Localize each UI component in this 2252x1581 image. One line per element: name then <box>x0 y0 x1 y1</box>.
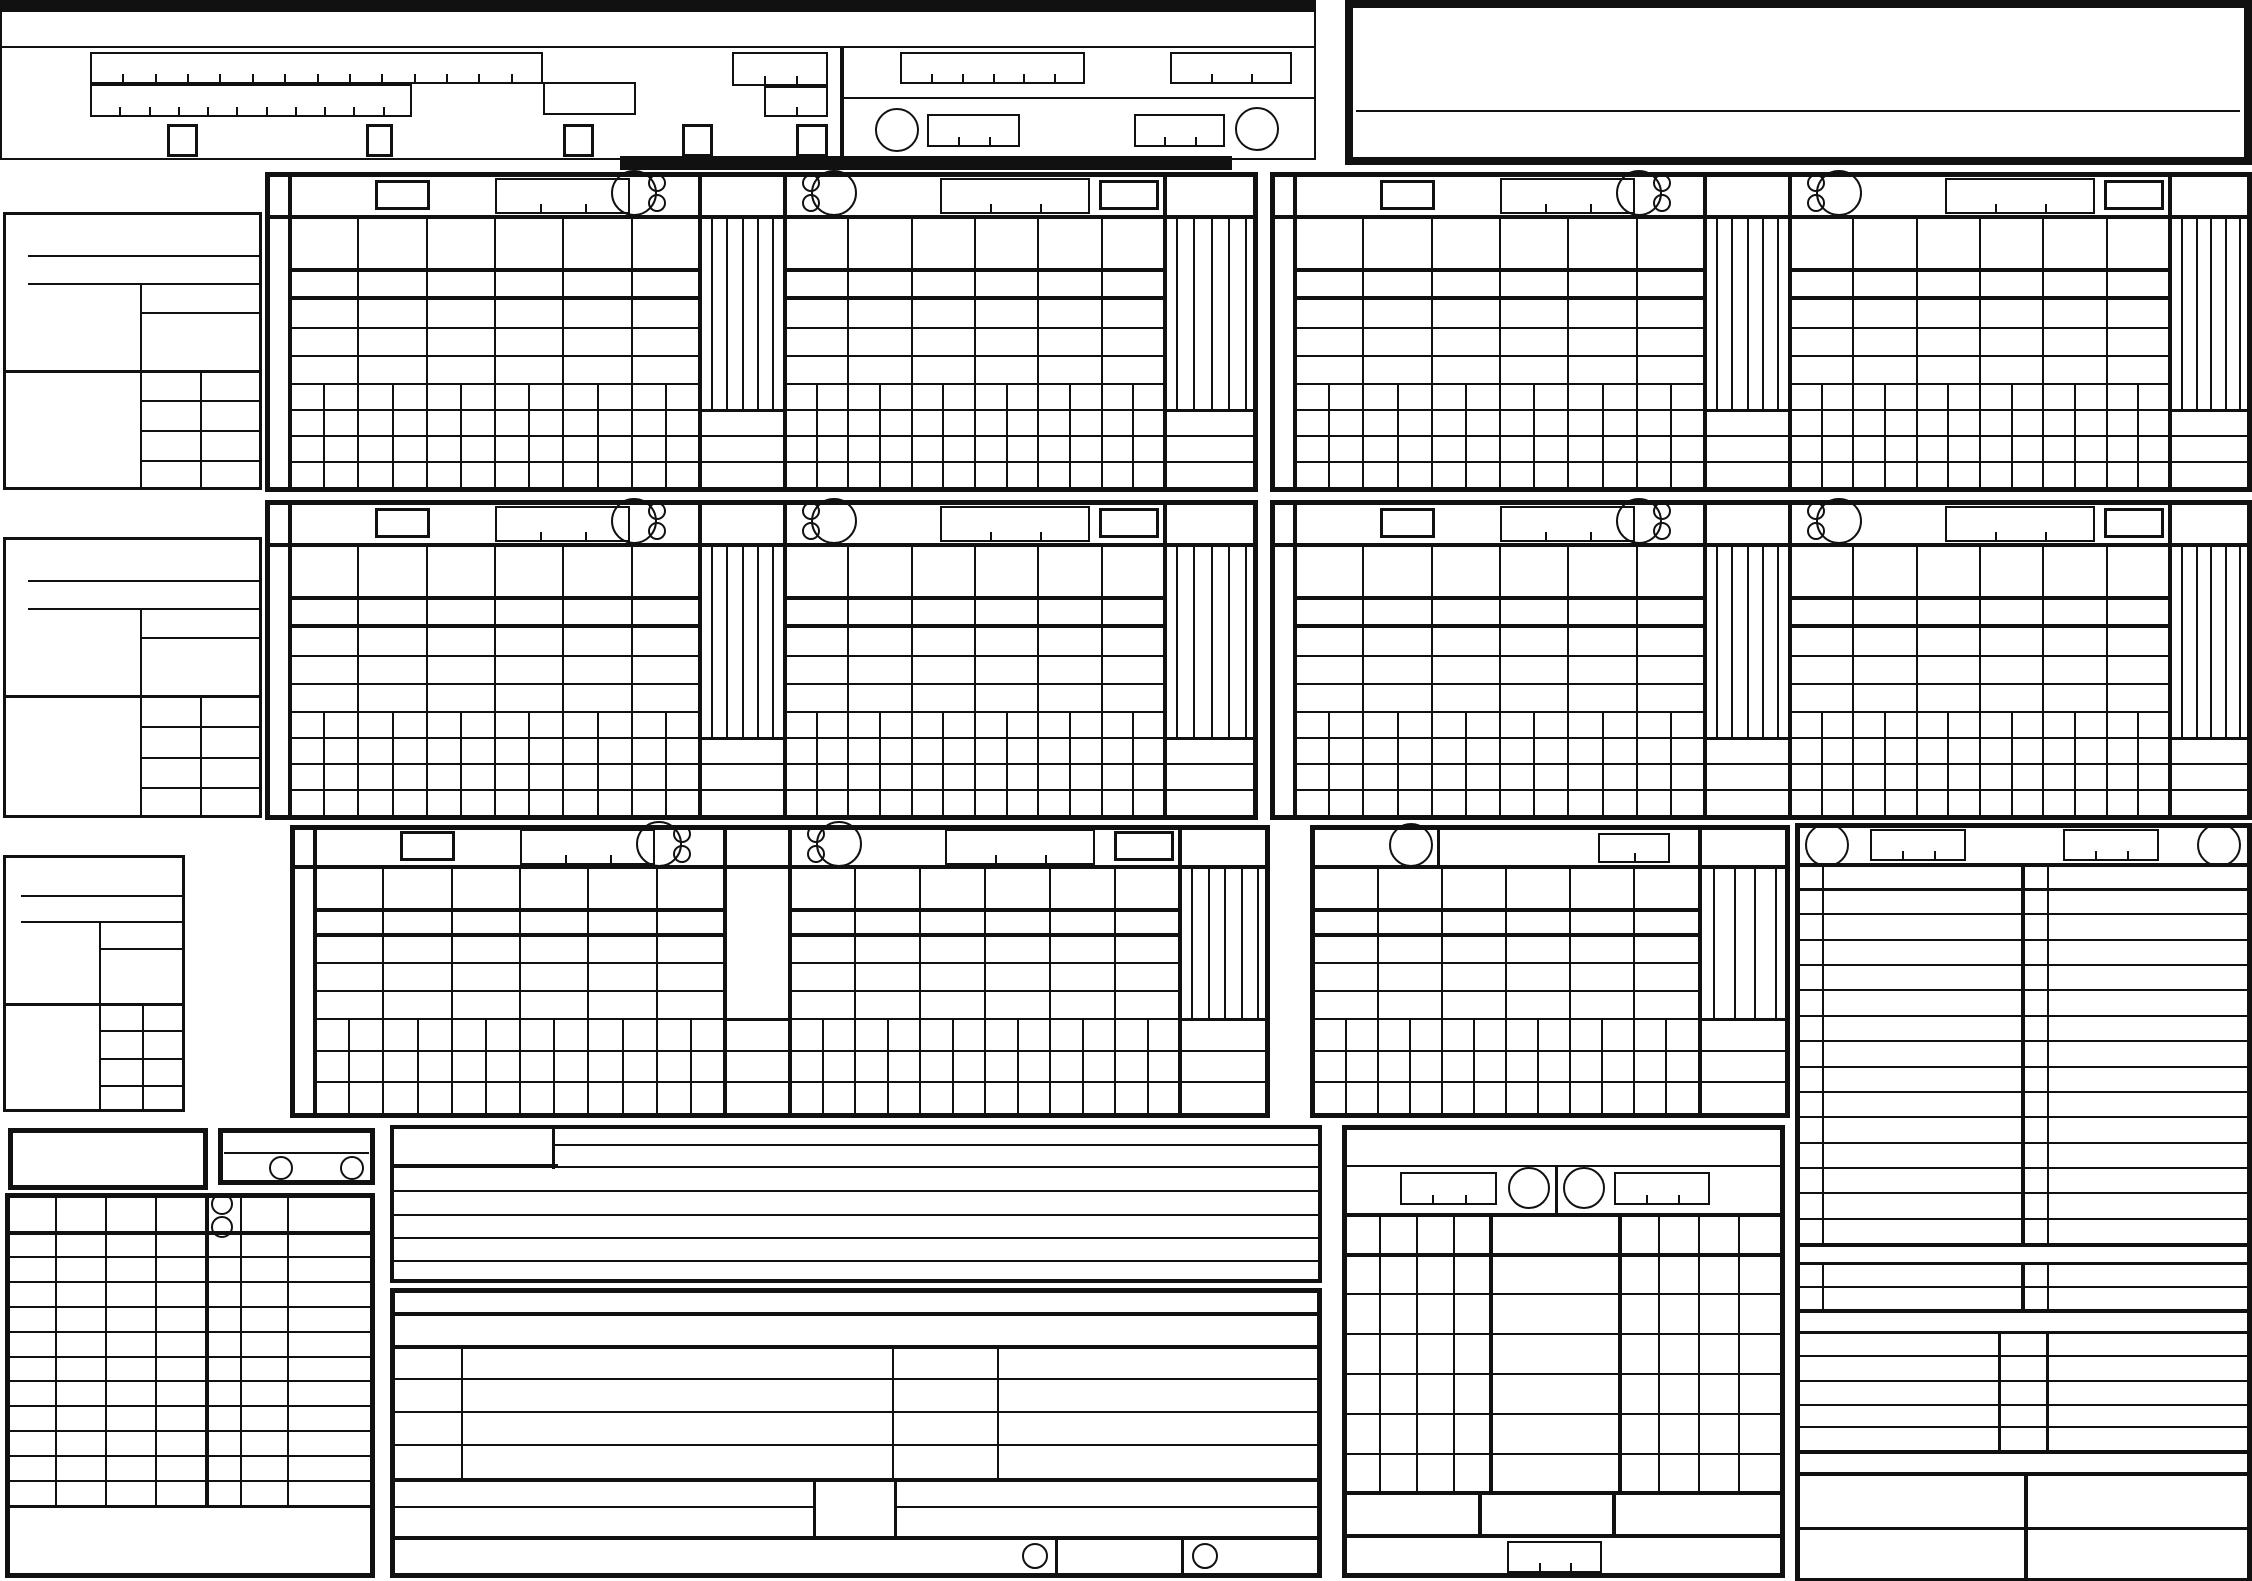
set-panel-3-team-left-start-time-box <box>495 506 630 542</box>
set-panel-2-divider-left-points <box>1703 176 1707 488</box>
set-panel-3-divider-left-points <box>698 504 702 816</box>
set-panel-1-divider-left-points <box>698 176 702 488</box>
results-panel-rows-bottom <box>1346 1491 1781 1495</box>
match-field-long-tick-4 <box>219 74 221 82</box>
set-panel-1-team-left-col-5 <box>631 219 633 488</box>
set-panel-2-points-right-cell-line-0 <box>2172 435 2250 437</box>
set-panel-4-team-left-serve-small-circle-1 <box>1653 502 1671 520</box>
match-info-block-2-row1-line <box>28 580 262 582</box>
remarks-panel-line-2 <box>393 1190 1319 1192</box>
set-panel-4-team-right-col-3 <box>1979 547 1981 816</box>
match-field-long-tick-8 <box>349 74 351 82</box>
set-5-after-change-panel-team-subcol-9 <box>1601 1019 1603 1114</box>
results-panel-bottom-line <box>1346 1534 1781 1538</box>
results-panel-team-b-circle <box>1563 1167 1605 1209</box>
set-panel-2-team-left-subcol-9 <box>1602 384 1604 488</box>
set-panel-2-points-left-points-col-3 <box>1762 219 1764 410</box>
team-a-code-field-tick-1 <box>958 137 960 145</box>
sanctions-panel-col-2 <box>155 1197 157 1505</box>
match-info-block-2-row2-line <box>28 608 262 610</box>
set-panel-5-divider-right-points <box>1178 829 1182 1114</box>
set-panel-1 <box>265 172 1258 492</box>
set-panel-5-setnum-divider <box>313 829 317 1114</box>
teams-roster-panel-officials-col-1 <box>1998 1331 2001 1452</box>
teams-roster-panel-roster-bottom <box>1799 1243 2248 1247</box>
set-panel-3-team-left-serve-small-circle-1 <box>648 502 666 520</box>
match-info-block-2-mid-line <box>3 695 262 698</box>
set-panel-2-team-right-subcol-11 <box>2137 384 2139 488</box>
set-panel-3-header-line <box>269 543 1254 547</box>
set-panel-1-team-right-start-time-box-tick-2 <box>1040 204 1042 212</box>
set-panel-2-team-left-col-2 <box>1431 219 1433 488</box>
set-5-after-change-panel-team-col-3 <box>1505 869 1507 1114</box>
teams-roster-panel-player-row-5 <box>1799 1015 2248 1017</box>
match-number-field-tick-3 <box>993 74 995 82</box>
set-panel-3-team-left-col-3 <box>494 547 496 816</box>
set-panel-5-team-left-subcol-11 <box>690 1019 692 1114</box>
set-panel-5-points-right-cell-line-0 <box>1182 1050 1268 1052</box>
set-panel-4-team-left-subcol-1 <box>1328 712 1330 816</box>
teams-roster-panel-player-row-8 <box>1799 1091 2248 1093</box>
set-panel-3-points-left-points-col-3 <box>757 547 759 738</box>
sanctions-panel-row-1 <box>9 1256 371 1258</box>
set-panel-5-points-right-points-col-2 <box>1224 869 1226 1019</box>
set-panel-2-points-right-points-col-0 <box>2181 219 2183 410</box>
set-panel-3-team-right-serve-circle <box>811 498 857 544</box>
set-panel-3-team-right-team-code-box <box>1099 508 1159 538</box>
match-field-long-tick-10 <box>414 74 416 82</box>
set-panel-1-header-line <box>269 215 1254 219</box>
set-panel-2-team-right-col-1 <box>1852 219 1854 488</box>
set-panel-4-points-left-points-col-1 <box>1731 547 1733 738</box>
set-panel-3-team-right-start-time-box-tick-2 <box>1040 532 1042 540</box>
set-panel-4-team-left-col-1 <box>1362 547 1364 816</box>
sanctions-panel-team-circle-b <box>211 1216 233 1238</box>
set-panel-4-team-left-start-time-box-tick-2 <box>1590 532 1592 540</box>
set-panel-5-points-right-points-col-4 <box>1257 869 1259 1019</box>
set-5-after-change-panel-team-col-1 <box>1377 869 1379 1114</box>
set-panel-5-header-line <box>294 865 1266 869</box>
teams-roster-panel-player-row-13 <box>1799 1218 2248 1220</box>
set-panel-3-team-left-start-time-box-tick-1 <box>540 532 542 540</box>
teams-roster-panel-player-row-3 <box>1799 964 2248 966</box>
match-info-block-3-grid-row-2 <box>99 1058 185 1060</box>
set-panel-4-points-right-points-col-0 <box>2181 547 2183 738</box>
set-panel-3-team-left-serve-small-circle-2 <box>648 522 666 540</box>
set-panel-3-points-right-points-col-3 <box>1228 547 1230 738</box>
set-5-after-change-panel-team-subcol-3 <box>1409 1019 1411 1114</box>
set-panel-2-points-right-cell-line-1 <box>2172 461 2250 463</box>
set-panel-5-points-right-points-col-3 <box>1241 869 1243 1019</box>
set-panel-4-team-right-col-2 <box>1916 547 1918 816</box>
set-panel-1-points-right-points-col-1 <box>1193 219 1195 410</box>
team-a-code-field-tick-2 <box>989 137 991 145</box>
set-panel-1-team-left-serve-small-circle-2 <box>648 194 666 212</box>
set-panel-2-points-left-cell-line-0 <box>1707 435 1788 437</box>
set-panel-3-team-left-subcol-11 <box>665 712 667 816</box>
approval-panel-captain-row-left <box>394 1506 813 1508</box>
match-info-block-1-mid-line <box>3 370 262 373</box>
set-5-after-change-panel-points-points-col-0 <box>1713 869 1715 1019</box>
set-panel-3-team-left-col-5 <box>631 547 633 816</box>
results-panel-team-a-code-tick-2 <box>1465 1195 1467 1203</box>
approval-panel-referees-bottom <box>394 1478 1318 1482</box>
set-panel-5-team-left-subcol-3 <box>417 1019 419 1114</box>
match-info-block-3-mid-line <box>3 1003 185 1006</box>
approval-panel-team-a-sign-circle <box>1022 1543 1048 1569</box>
match-info-block-3-grid-row-1 <box>99 1030 185 1032</box>
match-info-block-1 <box>3 212 262 490</box>
teams-roster-panel-officials-bottom <box>1799 1450 2248 1454</box>
set-panel-2-divider-right-team <box>1788 176 1792 488</box>
match-field-long-tick-9 <box>381 74 383 82</box>
teams-roster-panel-player-row-10 <box>1799 1142 2248 1144</box>
set-panel-1-team-right-subcol-9 <box>1069 384 1071 488</box>
set-5-after-change-panel-serve-circle <box>1389 823 1433 867</box>
set-panel-1-points-right-points-col-2 <box>1211 219 1213 410</box>
approval-panel <box>390 1288 1322 1578</box>
results-panel-bottom-div-2 <box>1612 1491 1616 1534</box>
set-panel-1-team-right-start-time-box-tick-1 <box>990 204 992 212</box>
set-5-after-change-panel-team-subcol-11 <box>1665 1019 1667 1114</box>
set-panel-4-points-right-points-col-1 <box>2196 547 2198 738</box>
results-panel-set-row-4 <box>1346 1453 1781 1455</box>
set-5-after-change-panel-team-subcol-7 <box>1537 1019 1539 1114</box>
set-panel-3-team-left-subcol-9 <box>597 712 599 816</box>
set-panel-5-team-right-subcol-11 <box>1147 1019 1149 1114</box>
sanctions-panel-row-9 <box>9 1455 371 1457</box>
approval-panel-band1-line <box>394 1312 1318 1316</box>
set-5-after-change-panel-points-points-col-2 <box>1754 869 1756 1019</box>
set-panel-4-team-left-team-code-box <box>1380 508 1435 538</box>
set-panel-2-points-right-cells-top <box>2172 409 2250 412</box>
set-panel-3-points-left-points-col-2 <box>742 547 744 738</box>
set-panel-2-team-right-col-2 <box>1916 219 1918 488</box>
set-panel-3-points-left-points-col-1 <box>726 547 728 738</box>
category-checkbox-3 <box>563 124 594 157</box>
set-panel-5-team-right-col-3 <box>984 869 986 1114</box>
set-panel-5-points-right-points-col-1 <box>1208 869 1210 1019</box>
teams-roster-panel-team-b-code-tick-1 <box>2095 851 2097 859</box>
division-field <box>1170 52 1292 84</box>
date-field-tick-2 <box>149 107 151 115</box>
set-panel-3-team-right-start-time-box <box>940 506 1090 542</box>
set-panel-3-points-right-points-col-4 <box>1245 547 1247 738</box>
set-panel-5-team-left-col-5 <box>656 869 658 1114</box>
set-panel-3-points-right-points-col-0 <box>1176 547 1178 738</box>
set-panel-2-team-left-start-time-box-tick-2 <box>1590 204 1592 212</box>
set-5-after-change-panel-points-points-col-1 <box>1734 869 1736 1019</box>
set-panel-1-team-left-start-time-box-tick-1 <box>540 204 542 212</box>
set-panel-5-team-left-col-2 <box>451 869 453 1114</box>
set-panel-3-points-right-cells-top <box>1167 737 1256 740</box>
results-panel-team-a-code <box>1400 1172 1497 1205</box>
set-panel-3-divider-right-team <box>783 504 787 816</box>
date-field-tick-4 <box>207 107 209 115</box>
match-field-long-tick-11 <box>446 74 448 82</box>
set-panel-5-team-left-team-code-box <box>400 831 455 861</box>
match-info-block-1-row1-line <box>28 255 262 257</box>
set-panel-5-gap-left <box>723 829 727 1114</box>
set-panel-4-points-left-cells-top <box>1707 737 1788 740</box>
set-panel-4-points-right-points-col-3 <box>2225 547 2227 738</box>
set-panel-4-team-right-start-time-box-tick-1 <box>1995 532 1997 540</box>
results-panel-set-row-1 <box>1346 1333 1781 1335</box>
set-panel-5-team-left-subcol-1 <box>348 1019 350 1114</box>
set-panel-5-team-right-start-time-box-tick-2 <box>1045 855 1047 863</box>
set-panel-2-points-left-points-col-4 <box>1777 219 1779 410</box>
set-panel-3-team-right-start-time-box-tick-1 <box>990 532 992 540</box>
set-panel-3-points-right-cell-line-0 <box>1167 763 1256 765</box>
set-panel-1-team-left-subcol-9 <box>597 384 599 488</box>
match-info-block-3-mid-divider <box>99 921 101 1003</box>
set-panel-1-team-left-subcol-3 <box>392 384 394 488</box>
set-panel-4-points-left-points-col-2 <box>1747 547 1749 738</box>
set-panel-2-team-right-serve-circle <box>1816 170 1862 216</box>
teams-roster-panel-officials-band <box>1799 1331 2248 1334</box>
teams-roster-panel-team-a-code-tick-1 <box>1902 851 1904 859</box>
set-panel-2-team-left-col-3 <box>1499 219 1501 488</box>
set-panel-5-team-right-subcol-9 <box>1082 1019 1084 1114</box>
set-panel-3-team-right-subcol-9 <box>1069 712 1071 816</box>
set-panel-1-team-right-subcol-7 <box>1006 384 1008 488</box>
set-panel-4-team-left-col-5 <box>1636 547 1638 816</box>
set-panel-5-points-right-cell-line-1 <box>1182 1081 1268 1083</box>
date-field-tick-3 <box>178 107 180 115</box>
set-panel-3-team-left-col-1 <box>357 547 359 816</box>
set-panel-1-team-left-serve-small-circle-1 <box>648 174 666 192</box>
match-info-block-3-grid-row-3 <box>99 1085 185 1087</box>
teams-roster-panel-libero-row-line <box>1799 1286 2248 1288</box>
teams-roster-panel-player-row-9 <box>1799 1116 2248 1118</box>
set-panel-5-team-right-col-4 <box>1049 869 1051 1114</box>
remarks-panel-title-right <box>552 1128 555 1169</box>
match-info-block-1-grid-row-3 <box>140 460 262 462</box>
set-panel-2-divider-right-points <box>2168 176 2172 488</box>
set-panel-2-team-right-col-5 <box>2106 219 2108 488</box>
set-panel-3-team-right-subcol-3 <box>879 712 881 816</box>
set-panel-4-team-left-serve-small-circle-2 <box>1653 522 1671 540</box>
set-panel-1-points-left-cell-line-0 <box>702 435 783 437</box>
set-panel-3-team-left-subcol-3 <box>392 712 394 816</box>
results-panel-header-line <box>1346 1213 1781 1217</box>
header-right-divider <box>842 97 1316 99</box>
set-panel-1-team-left-start-time-box-tick-2 <box>585 204 587 212</box>
set-panel-2-points-right-points-col-3 <box>2225 219 2227 410</box>
set-panel-4-team-right-team-code-box <box>2104 508 2164 538</box>
set-panel-2-team-right-subcol-3 <box>1884 384 1886 488</box>
sanctions-panel-row-5 <box>9 1356 371 1358</box>
match-info-block-1-mid-divider <box>140 283 142 370</box>
match-field-long-tick-3 <box>187 74 189 82</box>
set-panel-4-divider-right-team <box>1788 504 1792 816</box>
set-panel-3-points-left-points-col-0 <box>711 547 713 738</box>
teams-roster-panel-officials-col-2 <box>2046 1331 2049 1452</box>
approval-panel-sign-mid-right <box>1181 1536 1184 1574</box>
set-panel-1-team-left-subcol-7 <box>528 384 530 488</box>
set-panel-1-points-left-points-col-2 <box>742 219 744 410</box>
set-panel-4-points-left-points-col-4 <box>1777 547 1779 738</box>
set-panel-5-team-left-subcol-7 <box>553 1019 555 1114</box>
fivb-logo-underline <box>1356 110 2240 112</box>
set-panel-1-points-right-points-col-0 <box>1176 219 1178 410</box>
sanctions-panel-table-bottom <box>9 1505 371 1508</box>
set-panel-1-team-right-subcol-3 <box>879 384 881 488</box>
results-panel-team-b-code-tick-1 <box>1646 1195 1648 1203</box>
set-panel-4-points-left-cell-line-1 <box>1707 789 1788 791</box>
set-panel-2-team-right-subcol-1 <box>1821 384 1823 488</box>
set-panel-3-team-right-subcol-7 <box>1006 712 1008 816</box>
match-info-block-2-mid-divider <box>140 608 142 695</box>
set-panel-2-team-left-subcol-1 <box>1328 384 1330 488</box>
set-panel-4-points-left-cell-line-0 <box>1707 763 1788 765</box>
set-panel-4-points-right-cell-line-0 <box>2172 763 2250 765</box>
city-field-tick-2 <box>796 76 798 84</box>
set-panel-3-points-right-cell-line-1 <box>1167 789 1256 791</box>
set-panel-5-team-left-col-3 <box>519 869 521 1114</box>
category-checkbox-4 <box>682 124 713 157</box>
match-field-long-tick-7 <box>317 74 319 82</box>
match-info-block-2-grid-row-2 <box>140 757 262 759</box>
set-panel-4-points-right-cell-line-1 <box>2172 789 2250 791</box>
remarks-panel-line-4 <box>393 1237 1319 1239</box>
set-5-after-change-panel-header-line <box>1314 865 1786 869</box>
set-panel-1-points-right-cell-line-0 <box>1167 435 1256 437</box>
set-panel-4-team-left-subcol-11 <box>1670 712 1672 816</box>
set-panel-1-team-left-col-4 <box>562 219 564 488</box>
set-5-after-change-panel-time-box-tick-1 <box>1634 853 1636 861</box>
sanctions-panel-col-3 <box>205 1197 209 1505</box>
set-panel-4-team-left-start-time-box-tick-1 <box>1545 532 1547 540</box>
set-panel-4-points-right-cells-top <box>2172 737 2250 740</box>
results-panel-duration-box-tick-2 <box>1570 1563 1572 1571</box>
set-panel-4-team-right-subcol-3 <box>1884 712 1886 816</box>
sanctions-panel-col-5 <box>287 1197 289 1505</box>
results-panel-title-line <box>1346 1165 1781 1167</box>
date-field-tick-9 <box>353 107 355 115</box>
set-panel-4-team-left-subcol-3 <box>1397 712 1399 816</box>
match-number-field-tick-1 <box>931 74 933 82</box>
header-title-divider <box>0 46 1316 48</box>
set-panel-4-team-right-subcol-11 <box>2137 712 2139 816</box>
date-field-tick-5 <box>236 107 238 115</box>
match-info-block-1-small-row-line <box>140 312 262 314</box>
match-info-block-2-grid-row-1 <box>140 726 262 728</box>
set-panel-2-team-right-start-time-box <box>1945 178 2095 214</box>
sanctions-panel-improper-team-b-circle <box>340 1156 364 1180</box>
approval-panel-captain-row-right <box>894 1506 1318 1508</box>
set-panel-1-points-left-points-col-0 <box>711 219 713 410</box>
set-panel-2-team-right-subcol-5 <box>1947 384 1949 488</box>
teams-roster-panel-official-row-0 <box>1799 1355 2248 1357</box>
set-panel-4-divider-left-points <box>1703 504 1707 816</box>
set-panel-2-team-left-subcol-11 <box>1670 384 1672 488</box>
team-a-header-circle <box>875 108 919 152</box>
set-panel-5-team-right-col-1 <box>854 869 856 1114</box>
set-panel-2-team-right-col-3 <box>1979 219 1981 488</box>
set-panel-5-team-left-start-time-box-tick-2 <box>610 855 612 863</box>
set-panel-4-team-left-col-4 <box>1567 547 1569 816</box>
set-panel-1-team-left-col-1 <box>357 219 359 488</box>
set-panel-2-points-right-points-col-2 <box>2210 219 2212 410</box>
set-panel-2-team-left-col-4 <box>1567 219 1569 488</box>
results-panel-set-row-0 <box>1346 1293 1781 1295</box>
set-panel-3-team-left-col-2 <box>426 547 428 816</box>
match-field-long-tick-6 <box>284 74 286 82</box>
set-panel-1-team-left-col-3 <box>494 219 496 488</box>
set-panel-4-team-right-subcol-7 <box>2011 712 2013 816</box>
set-panel-2-points-left-cells-top <box>1707 409 1788 412</box>
results-panel-bottom-div-1 <box>1478 1491 1482 1534</box>
set-panel-4-team-right-col-1 <box>1852 547 1854 816</box>
sanctions-panel-row-4 <box>9 1331 371 1333</box>
teams-roster-panel-player-row-1 <box>1799 913 2248 915</box>
time-field-box <box>543 82 636 115</box>
sanctions-panel-header-line <box>9 1231 371 1235</box>
set-panel-3-team-left-subcol-5 <box>460 712 462 816</box>
sanctions-panel-team-circle-a <box>211 1193 233 1215</box>
sanctions-panel-row-3 <box>9 1306 371 1308</box>
teams-roster-panel-official-row-3 <box>1799 1426 2248 1428</box>
set-panel-1-team-right-subcol-5 <box>942 384 944 488</box>
set-panel-3-team-left-subcol-1 <box>323 712 325 816</box>
set-panel-2-team-left-subcol-3 <box>1397 384 1399 488</box>
set-panel-1-points-right-cell-line-1 <box>1167 461 1256 463</box>
teams-roster-panel-team-b-circle <box>2197 823 2241 867</box>
date-field-tick-8 <box>324 107 326 115</box>
set-panel-4-team-right-subcol-5 <box>1947 712 1949 816</box>
set-panel-3-team-right-subcol-1 <box>816 712 818 816</box>
set-panel-5-team-right-col-2 <box>919 869 921 1114</box>
teams-roster-panel-sign-row-line <box>1799 1527 2248 1530</box>
set-panel-2-points-right-points-col-4 <box>2239 219 2241 410</box>
set-panel-2-team-left-team-code-box <box>1380 180 1435 210</box>
approval-panel-band2-line <box>394 1345 1318 1349</box>
sanctions-panel-row-6 <box>9 1380 371 1382</box>
set-panel-4-team-left-subcol-7 <box>1533 712 1535 816</box>
set-panel-1-team-right-col-2 <box>911 219 913 488</box>
teams-roster-panel-player-row-12 <box>1799 1192 2248 1194</box>
sanctions-panel-col-0 <box>55 1197 57 1505</box>
set-panel-2-team-left-start-time-box <box>1500 178 1635 214</box>
remarks-panel-line-5 <box>393 1260 1319 1262</box>
set-panel-4-team-right-start-time-box <box>1945 506 2095 542</box>
set-panel-1-points-right-cells-top <box>1167 409 1256 412</box>
set-panel-4 <box>1270 500 2252 820</box>
set-panel-5-team-right-subcol-1 <box>822 1019 824 1114</box>
set-5-after-change-panel-team-col-4 <box>1569 869 1571 1114</box>
results-panel-mid-divider <box>1555 1165 1558 1213</box>
sanctions-panel-row-8 <box>9 1430 371 1432</box>
set-5-after-change-panel-team-col-5 <box>1633 869 1635 1114</box>
set-panel-2-team-left-subcol-5 <box>1465 384 1467 488</box>
fivb-logo-box <box>1345 0 2252 165</box>
set-panel-3 <box>265 500 1258 820</box>
set-panel-2-team-right-start-time-box-tick-2 <box>2045 204 2047 212</box>
teams-roster-panel-official-row-2 <box>1799 1404 2248 1406</box>
set-panel-1-team-right-start-time-box <box>940 178 1090 214</box>
sanctions-panel-title-box <box>8 1128 208 1190</box>
teams-roster-panel-player-row-6 <box>1799 1040 2248 1042</box>
teams-roster-panel-sign-divider <box>2024 1472 2028 1578</box>
match-info-block-3 <box>3 855 185 1112</box>
set-5-after-change-panel-team-subcol-1 <box>1345 1019 1347 1114</box>
date-field-tick-6 <box>266 107 268 115</box>
set-5-after-change-panel-points-points-col-3 <box>1775 869 1777 1019</box>
set-panel-1-team-left-subcol-5 <box>460 384 462 488</box>
teams-roster-panel-team-a-code <box>1870 829 1966 861</box>
set-panel-3-team-right-subcol-5 <box>942 712 944 816</box>
